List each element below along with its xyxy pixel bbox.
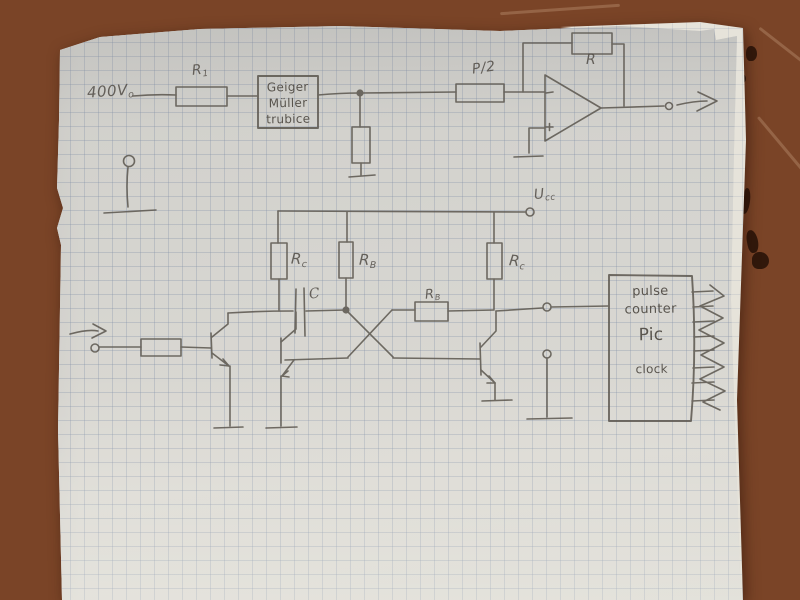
opamp-minus-icon: [546, 92, 553, 93]
ground-symbol: [482, 400, 512, 401]
photo-of-schematic: 400Vo R1 Geiger Müller trubice P/2 R Ucc…: [0, 0, 800, 600]
opamp-plus-icon: [546, 124, 553, 131]
feedback-r-label: R: [586, 52, 596, 68]
p2-label: P/2: [471, 58, 497, 77]
ucc-terminal: [526, 208, 534, 216]
input-resistor: [99, 339, 211, 356]
wire: [318, 92, 456, 95]
rc-right-label: Rc: [508, 251, 527, 272]
rb-mid-label: RB: [359, 251, 378, 271]
collector-resistor-left: [271, 243, 287, 311]
opamp: [545, 75, 601, 141]
hv-supply-label: 400Vo: [86, 80, 134, 103]
ucc-label: Ucc: [533, 185, 556, 205]
output-terminal: [601, 103, 673, 110]
hv-wire: [133, 95, 176, 96]
pulldown-resistor: [352, 93, 370, 175]
ground-symbol: [527, 418, 572, 419]
counter-pins: [692, 285, 725, 410]
resistor-r1: [176, 87, 227, 106]
rb-cross-label: RB: [424, 286, 441, 303]
transistor-q1: [211, 313, 230, 426]
input-arrow: [70, 324, 106, 338]
cross-coupling: [285, 310, 480, 360]
pin-zigzag-arrows: [699, 285, 725, 410]
potentiometer-p2: [456, 84, 504, 102]
ground-symbol: [266, 427, 297, 428]
capacitor-label: C: [308, 285, 321, 302]
output-port: [496, 303, 609, 417]
geiger-tube-label: Geiger Müller trubice: [257, 78, 320, 127]
transistor-q2: [281, 312, 296, 426]
transistor-q3: [480, 311, 496, 400]
input-terminal: [91, 344, 99, 352]
ground-symbol: [214, 427, 243, 428]
hv-ground-terminal: [104, 156, 156, 214]
collector-rail: [228, 310, 345, 313]
collector-resistor-right: [487, 243, 502, 309]
r1-label: R1: [191, 61, 209, 80]
rc-left-label: Rc: [290, 250, 308, 271]
output-arrow: [677, 92, 717, 111]
feedback-resistor: [523, 33, 624, 106]
pulse-counter-label: pulse counter Pic clock: [610, 282, 692, 378]
opamp-plus-ground: [514, 128, 545, 157]
supply-rail: [278, 211, 526, 243]
ground-symbol: [349, 175, 375, 177]
base-resistor-mid: [339, 242, 353, 308]
base-resistor-cross: [392, 302, 494, 321]
